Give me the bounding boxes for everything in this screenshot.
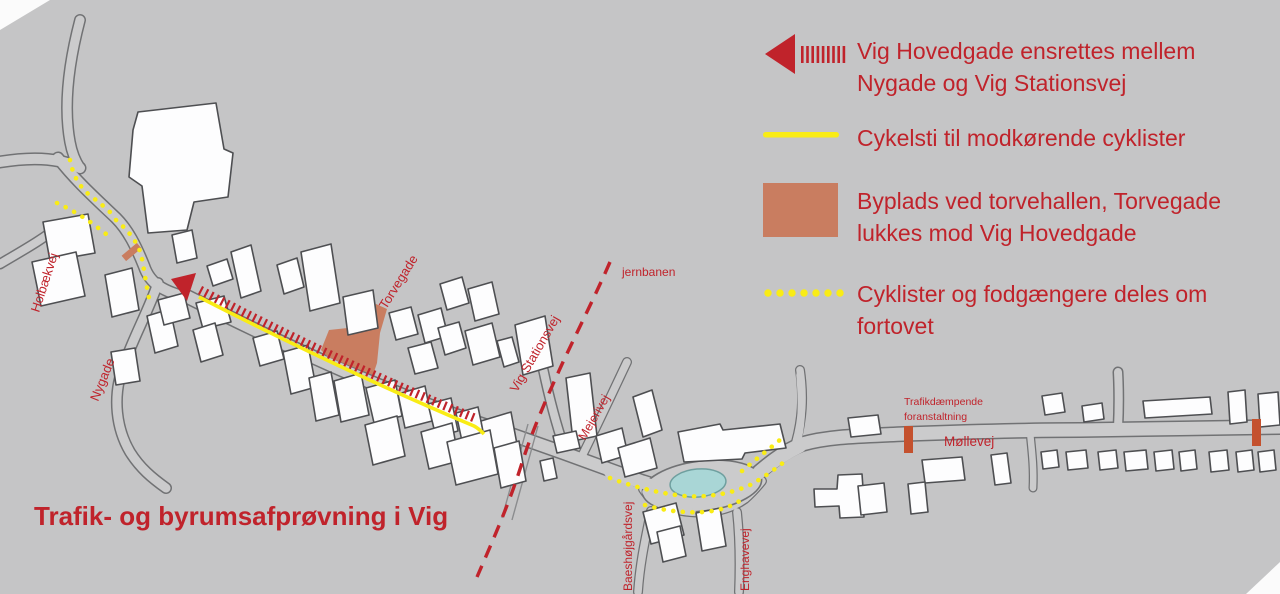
traffic-calming-bar xyxy=(1252,419,1261,446)
building xyxy=(468,282,499,321)
page-title: Trafik- og byrumsafprøvning i Vig xyxy=(34,501,448,532)
legend-item-shared-sidewalk: Cyklister og fodgængere deles om fortove… xyxy=(752,271,1280,341)
building xyxy=(440,277,469,310)
building xyxy=(1179,450,1197,471)
building xyxy=(365,416,405,465)
building xyxy=(309,372,339,421)
building xyxy=(231,245,261,298)
page-corner xyxy=(0,0,50,30)
legend-item-one-way: Vig Hovedgade ensrettes mellem Nygade og… xyxy=(752,28,1280,108)
building xyxy=(389,307,418,340)
building xyxy=(848,415,881,437)
building xyxy=(1258,392,1280,427)
street-label-mollevej: Møllevej xyxy=(944,434,994,449)
legend-item-label: Cyklister og fodgængere deles om fortove… xyxy=(857,278,1253,342)
building xyxy=(1042,393,1065,415)
traffic-calming-label-line1: Trafikdæmpende xyxy=(904,396,983,408)
page-corner xyxy=(1246,562,1280,594)
building xyxy=(497,337,519,367)
building xyxy=(408,342,438,374)
building xyxy=(1041,450,1059,469)
building xyxy=(172,230,197,263)
building xyxy=(1236,450,1254,472)
street-label-torvegade: Torvegade xyxy=(376,252,421,311)
building xyxy=(343,290,378,335)
legend-item-label: Vig Hovedgade ensrettes mellem Nygade og… xyxy=(857,35,1253,99)
building xyxy=(193,323,223,362)
building xyxy=(129,103,233,233)
building xyxy=(540,458,557,481)
traffic-calming-label-line2: foranstaltning xyxy=(904,411,967,423)
building xyxy=(991,453,1011,485)
building xyxy=(633,390,662,437)
building xyxy=(1098,450,1118,470)
bike-lane-line-icon xyxy=(763,126,841,144)
street-label-enghavevej: Enghavevej xyxy=(738,528,752,591)
building xyxy=(1143,397,1212,418)
shared-sidewalk-dots-icon xyxy=(763,285,847,303)
legend-item-label: Byplads ved torvehallen, Torvegade lukke… xyxy=(857,185,1253,249)
building xyxy=(1124,450,1148,471)
building xyxy=(1209,450,1229,472)
map-page: Holbækvej Nygade Torvegade Vig Stationsv… xyxy=(0,0,1280,594)
building xyxy=(1154,450,1174,471)
building xyxy=(1082,403,1104,422)
building xyxy=(858,483,887,515)
building xyxy=(105,268,139,317)
building xyxy=(207,259,233,286)
building xyxy=(908,482,928,514)
building xyxy=(1066,450,1088,470)
legend-item-label: Cykelsti til modkørende cyklister xyxy=(857,122,1253,154)
street-label-baeshojgardsvej: Baeshøjgårdsvej xyxy=(621,502,635,591)
legend-item-bike-lane: Cykelsti til modkørende cyklister xyxy=(752,112,1280,152)
legend: Vig Hovedgade ensrettes mellem Nygade og… xyxy=(752,0,1280,360)
building xyxy=(1228,390,1247,424)
one-way-arrow-icon xyxy=(763,31,847,82)
building xyxy=(696,508,726,551)
legend-item-byplads: Byplads ved torvehallen, Torvegade lukke… xyxy=(752,178,1280,248)
building xyxy=(438,322,466,355)
building xyxy=(1258,450,1276,472)
railway-label-jernbanen: jernbanen xyxy=(621,265,675,279)
building xyxy=(277,258,304,294)
building xyxy=(657,526,686,562)
byplads-swatch-icon xyxy=(763,183,838,237)
building xyxy=(301,244,340,311)
building xyxy=(465,323,500,365)
building xyxy=(922,457,965,483)
traffic-calming-bar xyxy=(904,426,913,453)
